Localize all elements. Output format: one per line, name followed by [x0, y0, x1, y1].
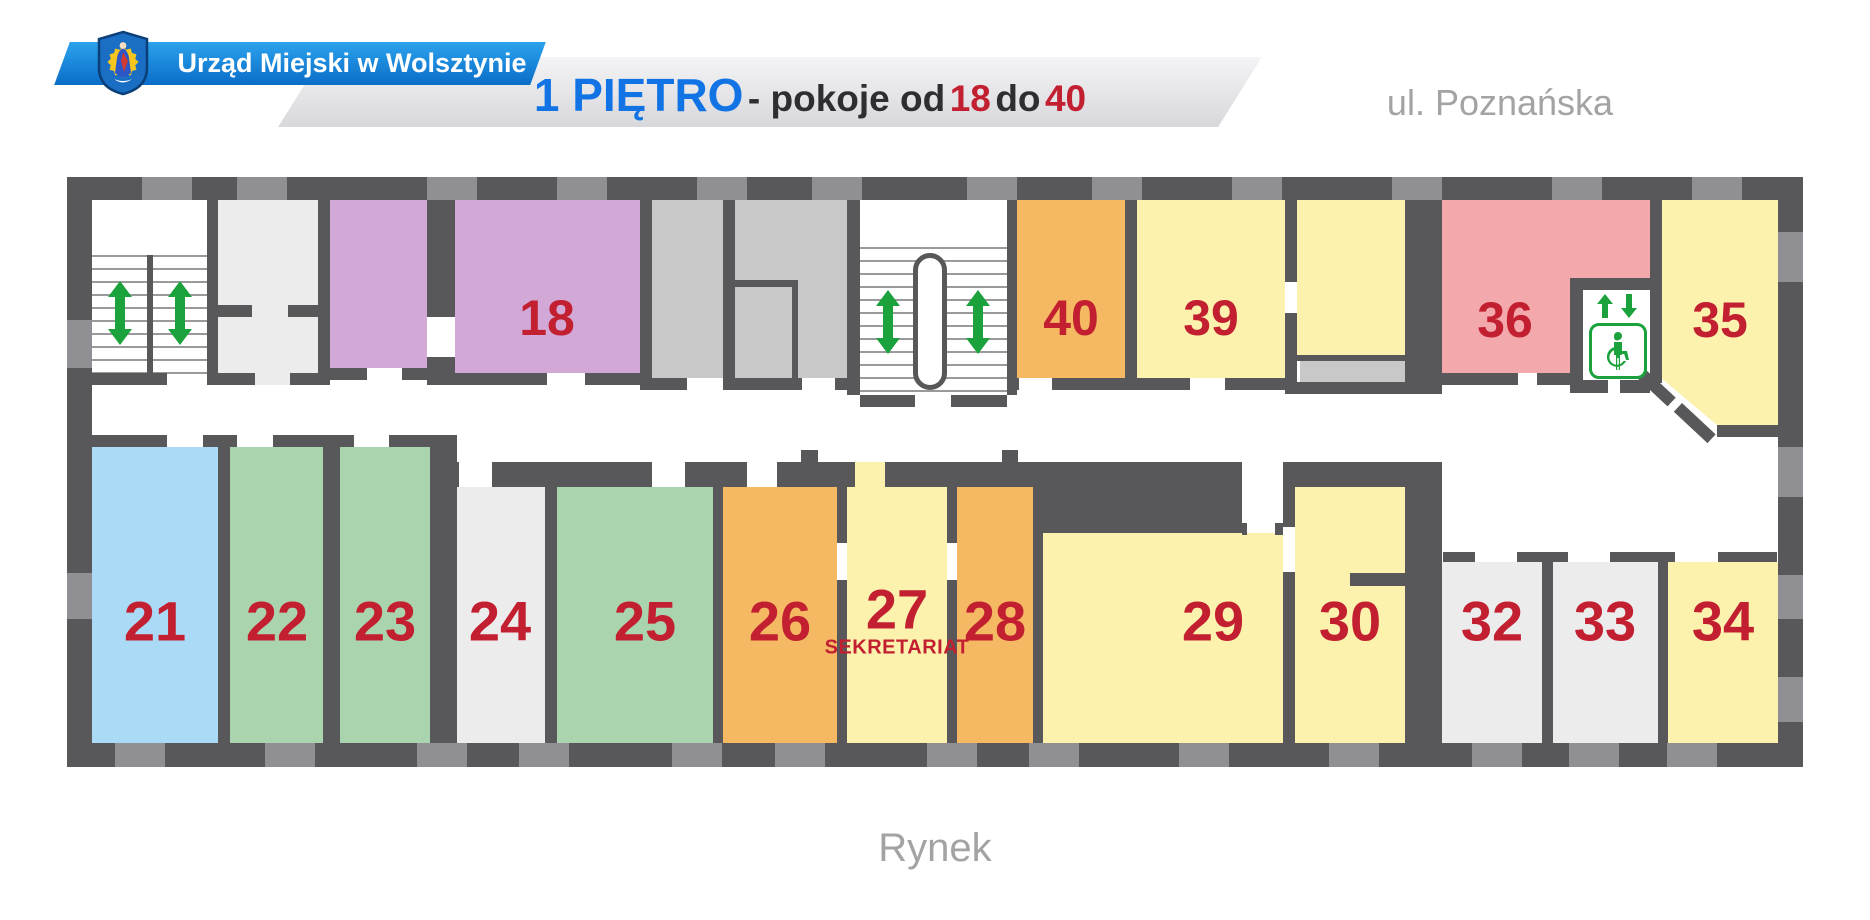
- wall-segment: [1610, 552, 1675, 562]
- wall-segment: [290, 373, 318, 385]
- room-18-number: 18: [519, 289, 575, 347]
- room-39-annex: [1297, 200, 1405, 355]
- wall-segment: [1542, 562, 1553, 743]
- window-segment: [427, 177, 477, 200]
- wall-segment: [218, 305, 252, 317]
- wall-segment: [430, 462, 459, 487]
- wall-segment: [1275, 523, 1283, 535]
- wall-segment: [389, 435, 430, 447]
- wall-segment: [273, 435, 354, 447]
- wall-segment: [1007, 378, 1019, 390]
- wall-segment: [947, 462, 1043, 487]
- page-title: 1 PIĘTRO - pokoje od 18 do 40: [460, 68, 1160, 122]
- wall-segment: [1570, 278, 1650, 290]
- window-segment: [1778, 447, 1803, 497]
- wall-segment: [860, 395, 915, 407]
- room-27-sublabel: SEKRETARIAT: [825, 637, 970, 660]
- wall-segment: [1350, 573, 1405, 586]
- wall-segment: [723, 200, 735, 390]
- wall-outer-top: [67, 177, 1803, 200]
- elevator-accessible-sign: [1589, 323, 1647, 379]
- wall-block: [1043, 462, 1242, 533]
- wall-stub: [1002, 450, 1018, 462]
- wall-segment: [1405, 462, 1442, 743]
- wall-segment: [427, 200, 455, 317]
- wall-segment: [1440, 373, 1518, 385]
- wall-segment: [847, 200, 860, 395]
- wall-stub: [801, 450, 818, 462]
- window-segment: [67, 320, 92, 368]
- window-segment: [1569, 743, 1619, 767]
- wall-segment: [1650, 200, 1662, 383]
- room-25-number: 25: [614, 589, 676, 654]
- wall-segment: [492, 462, 652, 487]
- staircase-center-landing: [913, 253, 947, 390]
- wall-segment: [207, 200, 218, 385]
- window-segment: [1778, 677, 1803, 722]
- wall-segment: [1052, 378, 1125, 390]
- wall-segment: [545, 487, 557, 743]
- wall-segment: [288, 305, 318, 317]
- wall-segment: [1007, 200, 1017, 395]
- wall-segment: [1125, 200, 1137, 390]
- wall-segment: [92, 373, 167, 385]
- wall-segment: [1285, 313, 1297, 390]
- wall-segment: [585, 373, 640, 385]
- window-segment: [927, 743, 977, 767]
- window-segment: [697, 177, 747, 200]
- wall-segment: [427, 357, 455, 373]
- subtitle-conj: do: [995, 78, 1040, 119]
- wall-segment: [1285, 200, 1297, 282]
- window-segment: [1232, 177, 1282, 200]
- window-segment: [1092, 177, 1142, 200]
- room-29-number: 29: [1182, 589, 1244, 654]
- wall-segment: [207, 373, 255, 385]
- room-range-to: 40: [1045, 78, 1086, 119]
- wall-segment: [885, 462, 947, 487]
- wall-segment: [1283, 487, 1295, 527]
- street-label-rynek: Rynek: [810, 826, 1060, 871]
- wall-segment: [1225, 378, 1285, 390]
- wall-segment: [330, 368, 367, 380]
- wall-segment: [318, 200, 330, 385]
- room-18-anteroom: [330, 200, 427, 368]
- room-18: [455, 200, 640, 373]
- room-27-door: [855, 462, 885, 487]
- wall-segment: [713, 487, 723, 743]
- room-29: [1043, 533, 1283, 743]
- wall-segment: [203, 435, 237, 447]
- window-segment: [557, 177, 607, 200]
- wall-segment: [1283, 572, 1295, 743]
- window-segment: [1472, 743, 1522, 767]
- window-segment: [237, 177, 287, 200]
- window-segment: [1778, 232, 1803, 282]
- room-30-number: 30: [1319, 589, 1381, 654]
- window-segment: [142, 177, 192, 200]
- staircase-left-divider: [147, 255, 153, 383]
- window-segment: [115, 743, 165, 767]
- window-segment: [265, 743, 315, 767]
- wall-segment: [835, 378, 847, 390]
- wall-segment: [1717, 425, 1778, 437]
- window-segment: [672, 743, 722, 767]
- window-segment: [1029, 743, 1079, 767]
- room-36-number: 36: [1477, 291, 1533, 349]
- wall-segment: [640, 378, 687, 390]
- wall-segment: [402, 368, 427, 380]
- wall-segment: [1570, 380, 1608, 393]
- wall-segment: [1537, 373, 1570, 385]
- window-segment: [1667, 743, 1717, 767]
- wall-segment: [723, 378, 802, 390]
- wall-segment: [777, 462, 847, 487]
- wolsztyn-coat-of-arms-icon: [95, 30, 151, 101]
- wheelchair-icon: [1605, 334, 1631, 368]
- wall-segment: [640, 200, 652, 385]
- window-segment: [1778, 575, 1803, 619]
- wall-segment: [1297, 355, 1405, 361]
- wall-segment: [1718, 552, 1777, 562]
- room-39-number: 39: [1183, 289, 1239, 347]
- wall-segment: [1125, 378, 1190, 390]
- room-39-annex-storage: [1300, 361, 1405, 382]
- wall-outer-left: [67, 177, 92, 767]
- room-22-number: 22: [246, 589, 308, 654]
- window-segment: [1392, 177, 1442, 200]
- room-33-number: 33: [1574, 589, 1636, 654]
- wall-segment: [323, 447, 340, 743]
- room-27-number: 27: [866, 577, 928, 642]
- window-segment: [519, 743, 569, 767]
- floor-title: 1 PIĘTRO: [534, 69, 744, 121]
- wall-segment: [427, 373, 547, 385]
- floor-plan: 18 40 39 36 35 21 22 23 24 25 26 27 SEKR…: [67, 177, 1803, 767]
- wall-segment: [735, 280, 798, 287]
- room-24-number: 24: [469, 589, 531, 654]
- room-32-number: 32: [1461, 589, 1523, 654]
- wall-segment: [792, 280, 798, 390]
- room-40-number: 40: [1043, 289, 1099, 347]
- street-label-poznanska: ul. Poznańska: [1330, 82, 1670, 124]
- wall-segment: [837, 580, 847, 743]
- window-segment: [1552, 177, 1602, 200]
- window-segment: [417, 743, 467, 767]
- wall-segment: [947, 487, 957, 543]
- room-range-from: 18: [950, 78, 991, 119]
- wall-segment: [1517, 552, 1568, 562]
- window-segment: [812, 177, 862, 200]
- wall-segment: [1033, 487, 1043, 743]
- wall-segment: [947, 580, 957, 743]
- subtitle-prefix: - pokoje od: [748, 78, 945, 119]
- room-35-number: 35: [1692, 291, 1748, 349]
- room-unlabeled-c: [735, 200, 847, 378]
- wall-segment: [1405, 200, 1442, 394]
- wall-segment: [1443, 552, 1475, 562]
- wall-segment: [1570, 278, 1583, 385]
- window-segment: [967, 177, 1017, 200]
- room-unlabeled-a: [218, 200, 318, 385]
- window-segment: [1692, 177, 1742, 200]
- room-23-number: 23: [354, 589, 416, 654]
- wall-segment: [847, 462, 855, 487]
- window-segment: [67, 573, 92, 619]
- window-segment: [1329, 743, 1379, 767]
- window-segment: [1179, 743, 1229, 767]
- room-26-number: 26: [749, 589, 811, 654]
- wall-segment: [713, 462, 747, 487]
- room-unlabeled-b: [652, 200, 723, 378]
- window-segment: [775, 743, 825, 767]
- room-21-number: 21: [124, 589, 186, 654]
- room-34-number: 34: [1692, 589, 1754, 654]
- wall-segment: [92, 435, 167, 447]
- room-36-upper: [1570, 200, 1650, 278]
- wall-segment: [1242, 523, 1247, 535]
- wall-segment: [1658, 562, 1668, 743]
- wall-segment: [218, 447, 230, 743]
- wall-segment: [685, 462, 713, 487]
- room-28-number: 28: [964, 589, 1026, 654]
- wall-segment: [951, 395, 1007, 407]
- wall-segment: [837, 487, 847, 543]
